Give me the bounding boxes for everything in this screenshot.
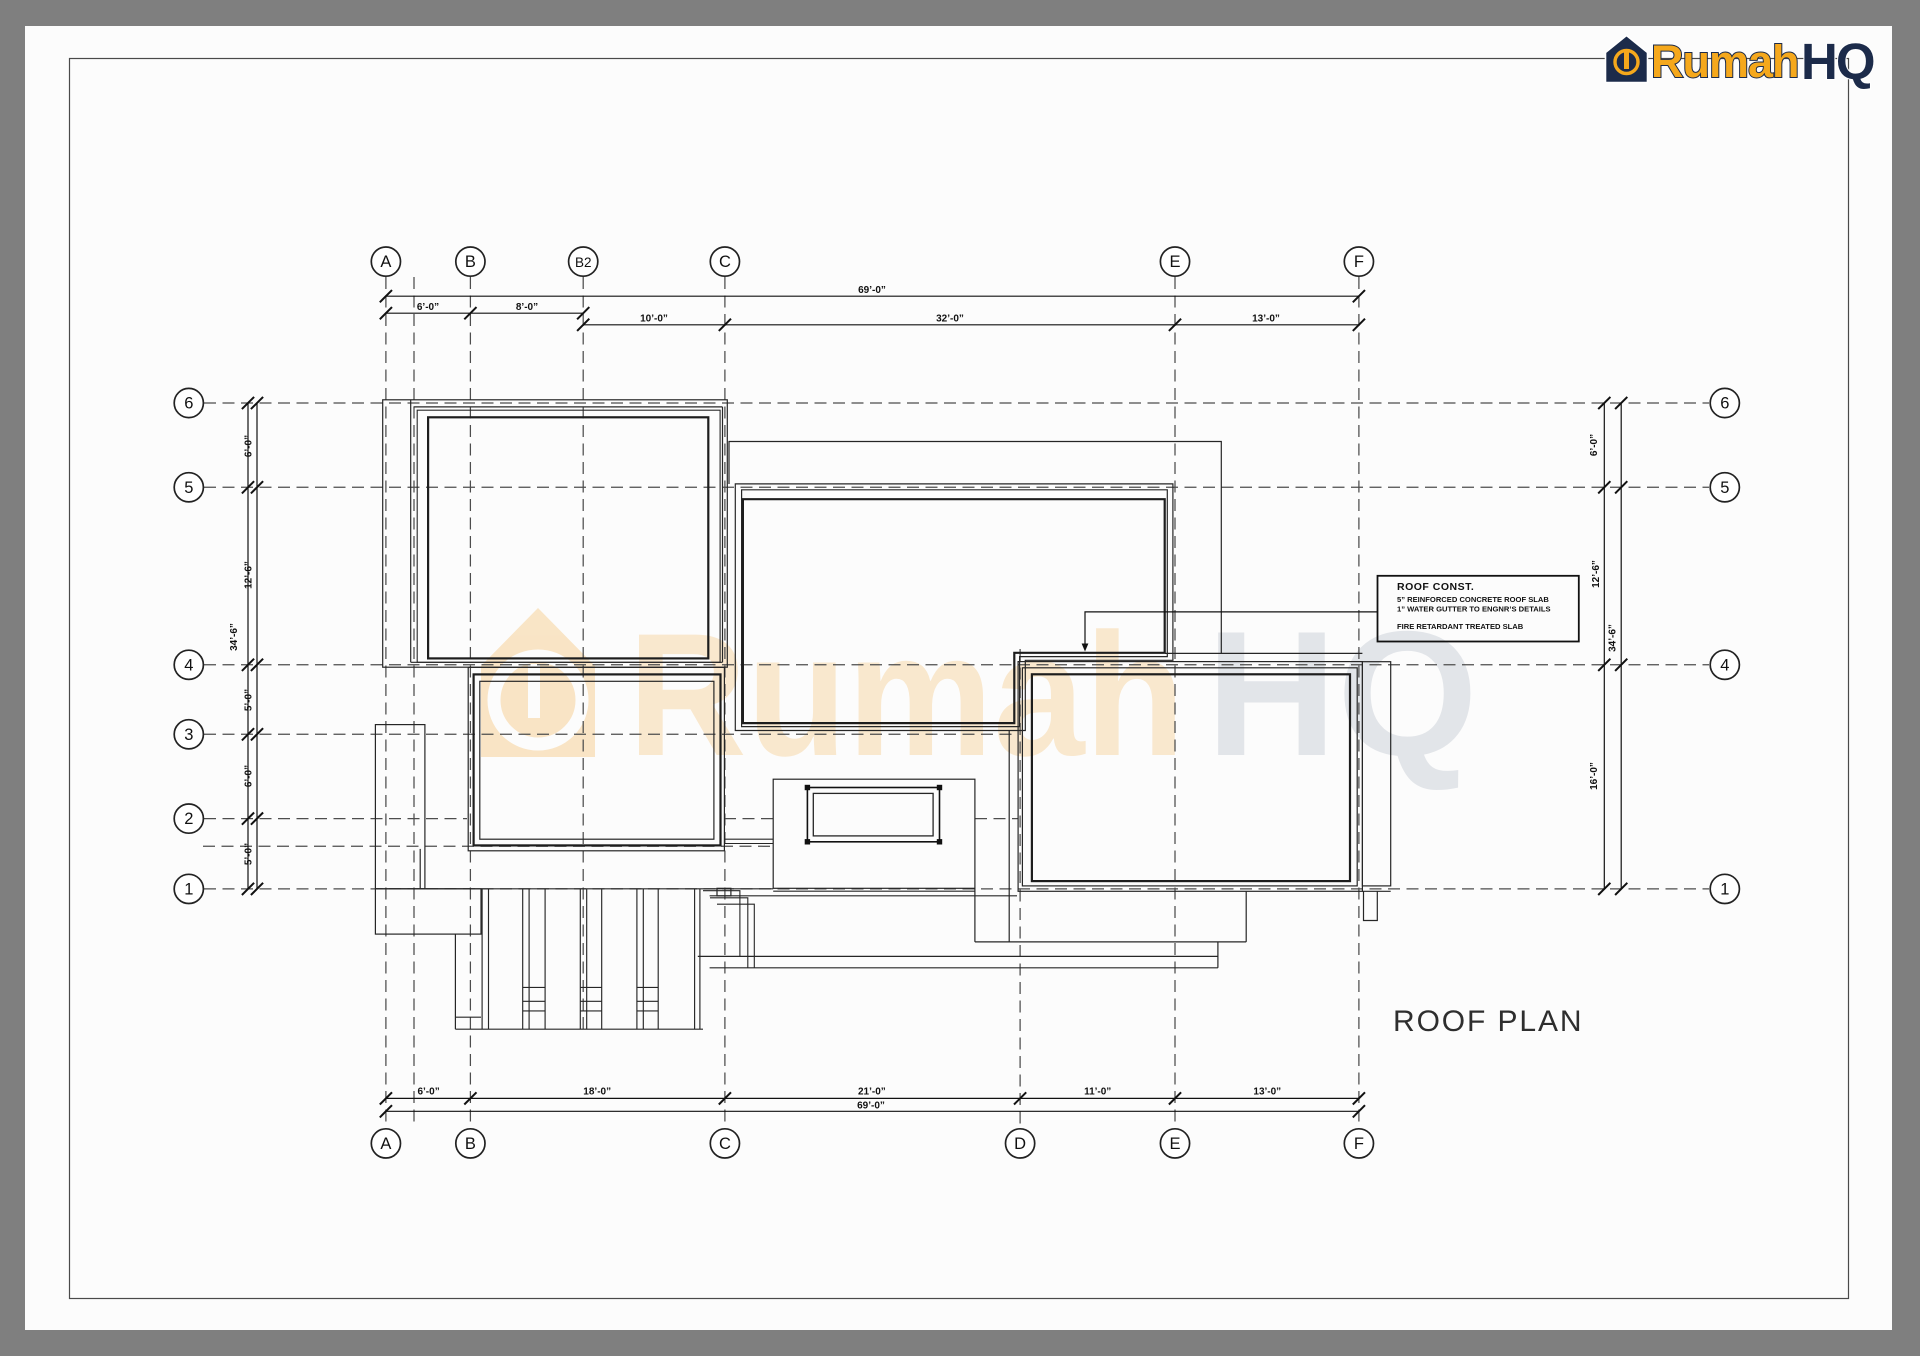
svg-text:A: A xyxy=(380,253,391,271)
svg-text:5: 5 xyxy=(1720,479,1729,497)
svg-text:5” REINFORCED CONCRETE ROOF SL: 5” REINFORCED CONCRETE ROOF SLAB xyxy=(1397,595,1549,604)
svg-text:4: 4 xyxy=(184,656,193,674)
svg-text:F: F xyxy=(1354,1135,1364,1153)
svg-text:32’-0”: 32’-0” xyxy=(936,314,964,325)
svg-text:5: 5 xyxy=(184,479,193,497)
svg-text:6’-0”: 6’-0” xyxy=(244,435,255,457)
svg-text:B: B xyxy=(465,1135,476,1153)
svg-text:18’-0”: 18’-0” xyxy=(583,1087,611,1098)
svg-text:E: E xyxy=(1169,1135,1180,1153)
svg-text:3: 3 xyxy=(184,726,193,744)
svg-text:F: F xyxy=(1354,253,1364,271)
svg-text:B: B xyxy=(465,253,476,271)
svg-text:C: C xyxy=(719,1135,731,1153)
svg-text:FIRE RETARDANT TREATED SLAB: FIRE RETARDANT TREATED SLAB xyxy=(1397,622,1524,631)
svg-text:69’-0”: 69’-0” xyxy=(857,1100,885,1111)
svg-text:5’-0”: 5’-0” xyxy=(244,843,255,865)
svg-text:34’-6”: 34’-6” xyxy=(1608,624,1619,652)
svg-text:6: 6 xyxy=(184,395,193,413)
svg-text:D: D xyxy=(1014,1135,1026,1153)
svg-text:21’-0”: 21’-0” xyxy=(858,1087,886,1098)
svg-text:6’-0”: 6’-0” xyxy=(417,1087,439,1098)
svg-text:34’-6”: 34’-6” xyxy=(229,623,240,651)
svg-text:6: 6 xyxy=(1720,395,1729,413)
svg-text:8’-0”: 8’-0” xyxy=(516,302,538,313)
svg-text:12’-6”: 12’-6” xyxy=(244,561,255,589)
svg-text:6’-0”: 6’-0” xyxy=(417,302,439,313)
svg-text:6’-0”: 6’-0” xyxy=(1589,434,1600,456)
svg-text:5’-0”: 5’-0” xyxy=(244,689,255,711)
svg-text:4: 4 xyxy=(1720,656,1729,674)
svg-text:12’-6”: 12’-6” xyxy=(1591,560,1602,588)
svg-text:ROOF PLAN: ROOF PLAN xyxy=(1393,1005,1583,1038)
svg-text:13’-0”: 13’-0” xyxy=(1253,1087,1281,1098)
svg-text:2: 2 xyxy=(184,810,193,828)
svg-text:1: 1 xyxy=(184,881,193,899)
svg-text:6’-0”: 6’-0” xyxy=(244,765,255,787)
svg-text:Rumah: Rumah xyxy=(628,598,1185,793)
svg-text:11’-0”: 11’-0” xyxy=(1084,1087,1111,1098)
svg-text:10’-0”: 10’-0” xyxy=(640,314,668,325)
svg-text:13’-0”: 13’-0” xyxy=(1252,314,1280,325)
svg-text:A: A xyxy=(380,1135,391,1153)
svg-text:C: C xyxy=(719,253,731,271)
svg-text:Rumah: Rumah xyxy=(1651,36,1799,87)
svg-text:1: 1 xyxy=(1720,881,1729,899)
svg-text:E: E xyxy=(1169,253,1180,271)
svg-text:HQ: HQ xyxy=(1801,33,1874,90)
svg-text:69’-0”: 69’-0” xyxy=(858,285,886,296)
svg-text:B2: B2 xyxy=(575,255,592,270)
svg-text:1” WATER GUTTER TO ENGNR’S DET: 1” WATER GUTTER TO ENGNR’S DETAILS xyxy=(1397,605,1551,614)
svg-text:ROOF CONST.: ROOF CONST. xyxy=(1397,581,1474,593)
svg-text:16’-0”: 16’-0” xyxy=(1589,762,1600,790)
